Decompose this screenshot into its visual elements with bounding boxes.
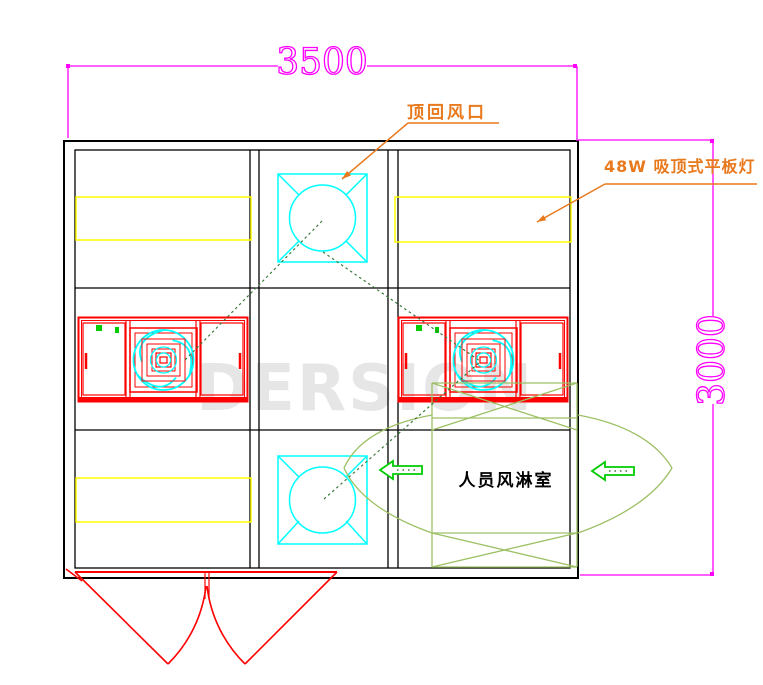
return-air-diffuser-top-icon [278, 174, 367, 262]
height-dimension-value: 3000 [693, 300, 733, 420]
leader-arrowhead-icon [537, 215, 546, 222]
lamp-bottom-left-icon [76, 478, 251, 522]
drawing-linework [0, 0, 763, 685]
floor-plan-canvas: DERSION [0, 0, 763, 685]
lamp-top-left-icon [76, 197, 251, 240]
fan-filter-unit-right-icon [398, 318, 568, 402]
door-swing-arc-right-icon [578, 415, 672, 468]
return-air-diffuser-bottom-icon [278, 456, 367, 544]
label-air-shower-room: 人员风淋室 [436, 466, 576, 491]
fan-filter-unit-left-icon [78, 318, 248, 402]
door-swing-arc-right-icon [578, 468, 672, 533]
airflow-arrow-outer-icon [592, 462, 634, 480]
double-swing-door-icon [66, 569, 337, 664]
airflow-arrow-inner-icon [380, 461, 422, 479]
width-dimension-value: 3500 [262, 44, 382, 82]
label-top-return-air: 顶回风口 [407, 98, 487, 123]
label-ceiling-lamp: 48W 吸顶式平板灯 [604, 153, 756, 177]
